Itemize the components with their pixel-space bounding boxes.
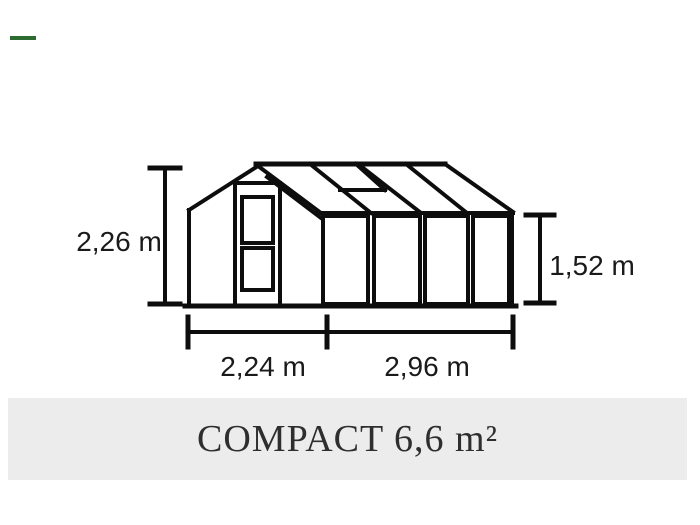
side-wall <box>316 212 513 306</box>
product-title: COMPACT 6,6 m² <box>197 417 498 461</box>
gable-end <box>189 166 321 306</box>
total-height-label: 2,26 m <box>76 226 162 257</box>
wall-panel <box>374 216 420 304</box>
door <box>235 183 280 306</box>
greenhouse-outline <box>185 164 516 306</box>
right-height-dimension: 1,52 m <box>526 215 635 303</box>
roof <box>256 164 513 213</box>
left-height-dimension: 2,26 m <box>76 168 180 304</box>
door-lower-panel <box>242 248 273 290</box>
greenhouse-line-drawing: 2,26 m <box>0 0 700 400</box>
bottom-width-dimension: 2,24 m 2,96 m <box>188 317 513 382</box>
gable-width-label: 2,24 m <box>220 351 306 382</box>
side-length-label: 2,96 m <box>384 351 470 382</box>
wall-panel <box>323 216 368 304</box>
wall-panel <box>473 216 509 304</box>
roof-vent-window <box>340 164 385 190</box>
wall-panel <box>425 216 468 304</box>
door-upper-panel <box>242 197 273 243</box>
eave-height-label: 1,52 m <box>549 250 635 281</box>
product-title-bar: COMPACT 6,6 m² <box>8 398 687 480</box>
greenhouse-product-diagram: 2,26 m <box>0 0 700 525</box>
